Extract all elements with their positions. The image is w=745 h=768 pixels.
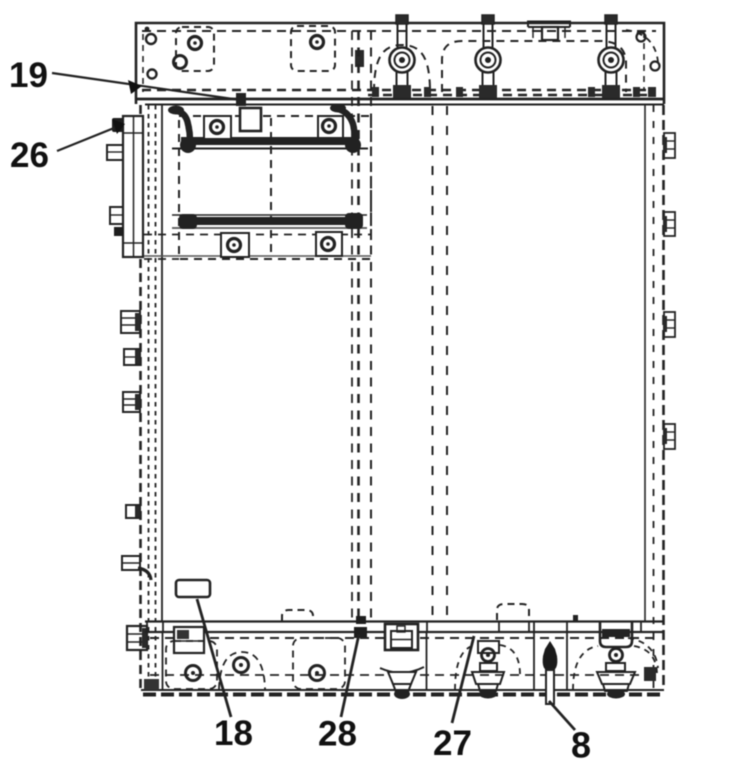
svg-text:18: 18 [214,714,253,753]
svg-text:27: 27 [433,724,472,763]
svg-text:19: 19 [9,56,48,95]
svg-text:8: 8 [571,725,591,766]
svg-text:28: 28 [318,715,357,754]
svg-text:26: 26 [10,136,49,175]
